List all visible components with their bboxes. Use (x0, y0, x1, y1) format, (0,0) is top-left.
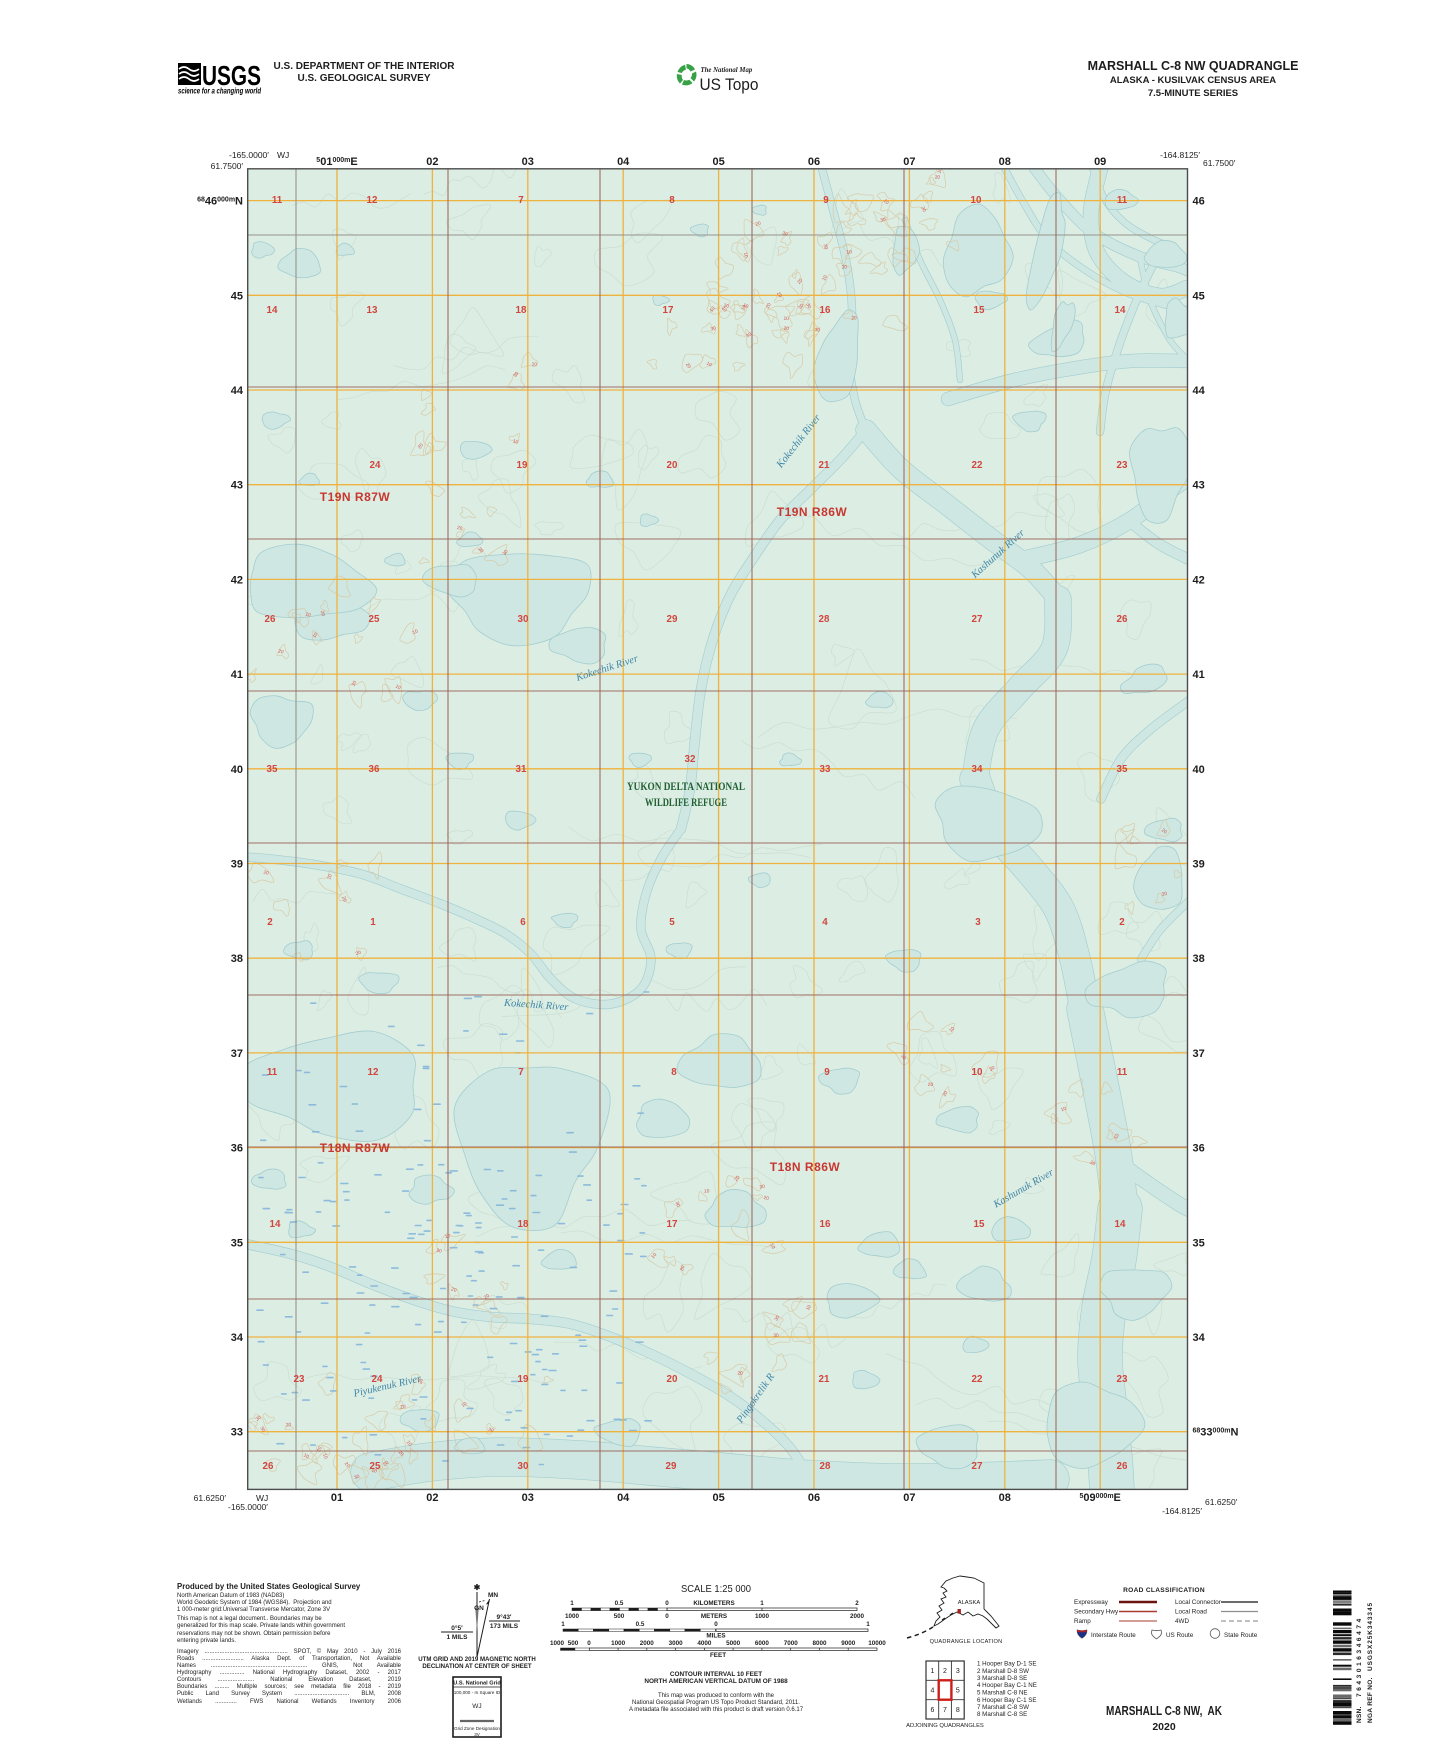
svg-text:ROAD CLASSIFICATION: ROAD CLASSIFICATION (1123, 1587, 1205, 1594)
svg-text:8000: 8000 (812, 1640, 827, 1647)
svg-text:0: 0 (714, 1621, 718, 1628)
svg-text:U.S. National Grid: U.S. National Grid (453, 1681, 501, 1687)
svg-text:06: 06 (808, 1492, 820, 1504)
svg-text:24: 24 (370, 460, 381, 471)
svg-text:38: 38 (231, 953, 243, 965)
svg-text:2000: 2000 (850, 1613, 865, 1620)
svg-text:20: 20 (286, 1422, 292, 1428)
svg-text:4: 4 (822, 917, 828, 928)
svg-text:7: 7 (943, 1707, 947, 1714)
svg-text:23: 23 (1117, 1374, 1128, 1385)
svg-text:04: 04 (617, 1492, 630, 1504)
svg-text:3 Marshall D-8 SE: 3 Marshall D-8 SE (977, 1675, 1027, 1682)
svg-text:11: 11 (267, 1067, 278, 1078)
svg-text:1: 1 (760, 1600, 764, 1607)
svg-text:27: 27 (972, 614, 983, 625)
svg-text:34: 34 (972, 764, 983, 775)
svg-text:29: 29 (666, 1461, 677, 1472)
svg-text:10: 10 (783, 316, 789, 322)
svg-text:36: 36 (231, 1143, 243, 1155)
svg-text:26: 26 (263, 1461, 274, 1472)
svg-text:9: 9 (824, 1067, 830, 1078)
svg-text:3000: 3000 (669, 1640, 684, 1647)
svg-text:0: 0 (587, 1640, 591, 1647)
svg-text:39: 39 (1193, 859, 1205, 871)
svg-text:NORTH AMERICAN VERTICAL DATUM: NORTH AMERICAN VERTICAL DATUM OF 1988 (644, 1678, 788, 1685)
svg-text:28: 28 (820, 1461, 831, 1472)
svg-text:14: 14 (1115, 305, 1126, 316)
svg-text:20: 20 (667, 1374, 678, 1385)
svg-text:06: 06 (808, 156, 820, 168)
svg-text:37: 37 (231, 1048, 243, 1060)
svg-text:4 Hooper Bay C-1 NE: 4 Hooper Bay C-1 NE (977, 1682, 1037, 1689)
svg-text:40: 40 (231, 764, 243, 776)
svg-text:20: 20 (928, 1082, 934, 1088)
svg-text:25: 25 (369, 614, 380, 625)
svg-text:0.5: 0.5 (636, 1621, 645, 1628)
svg-text:1: 1 (570, 1600, 574, 1607)
svg-text:1000: 1000 (755, 1613, 770, 1620)
svg-text:7643016346474: 7643016346474 (1356, 1616, 1363, 1697)
svg-text:22: 22 (972, 1374, 983, 1385)
svg-text:NSN.: NSN. (1356, 1706, 1363, 1723)
svg-text:2: 2 (943, 1668, 947, 1675)
svg-text:2000: 2000 (640, 1640, 655, 1647)
svg-text:Grid Zone Designation: Grid Zone Designation (454, 1726, 500, 1731)
svg-text:9: 9 (823, 195, 829, 206)
svg-text:1000: 1000 (611, 1640, 626, 1647)
svg-text:T18N R87W: T18N R87W (320, 1141, 391, 1155)
svg-text:0: 0 (665, 1600, 669, 1607)
svg-text:Local Connector: Local Connector (1175, 1599, 1221, 1606)
svg-text:04: 04 (617, 156, 630, 168)
svg-text:34: 34 (1193, 1332, 1206, 1344)
svg-text:0.5: 0.5 (615, 1600, 624, 1607)
svg-text:02: 02 (426, 1492, 438, 1504)
svg-text:2: 2 (1119, 917, 1125, 928)
svg-text:This map was produced to confo: This map was produced to conform with th… (658, 1693, 775, 1699)
svg-text:1: 1 (370, 917, 376, 928)
svg-text:5: 5 (956, 1688, 960, 1695)
svg-text:07: 07 (903, 1492, 915, 1504)
svg-text:8: 8 (669, 195, 675, 206)
svg-text:30: 30 (518, 1461, 529, 1472)
svg-text:5000: 5000 (726, 1640, 741, 1647)
svg-text:38: 38 (1193, 953, 1205, 965)
svg-text:05: 05 (712, 156, 724, 168)
svg-text:501000mE: 501000mE (316, 156, 357, 168)
svg-text:02: 02 (426, 156, 438, 168)
svg-text:1: 1 (930, 1668, 934, 1675)
svg-text:ADJOINING QUADRANGLES: ADJOINING QUADRANGLES (906, 1723, 984, 1729)
svg-text:DECLINATION AT CENTER OF SHEET: DECLINATION AT CENTER OF SHEET (422, 1663, 532, 1670)
svg-text:03: 03 (522, 156, 534, 168)
svg-text:2: 2 (855, 1600, 859, 1607)
svg-text:42: 42 (1193, 574, 1205, 586)
svg-text:01: 01 (331, 1492, 343, 1504)
svg-text:1: 1 (561, 1621, 565, 1628)
svg-text:30: 30 (814, 327, 820, 334)
svg-text:17: 17 (663, 305, 674, 316)
svg-text:4WD: 4WD (1175, 1618, 1189, 1625)
svg-text:0°5′: 0°5′ (451, 1624, 463, 1632)
svg-text:44: 44 (1193, 385, 1206, 397)
svg-text:31: 31 (516, 764, 527, 775)
svg-text:34: 34 (231, 1332, 244, 1344)
svg-text:29: 29 (667, 614, 678, 625)
svg-text:1 Hooper Bay D-1 SE: 1 Hooper Bay D-1 SE (977, 1661, 1037, 1668)
svg-text:09: 09 (1094, 156, 1106, 168)
svg-text:1 MILS: 1 MILS (447, 1634, 469, 1641)
svg-text:21: 21 (819, 1374, 830, 1385)
svg-text:27: 27 (972, 1461, 983, 1472)
svg-text:16: 16 (820, 305, 831, 316)
svg-text:10: 10 (531, 361, 537, 368)
svg-text:20: 20 (842, 264, 848, 270)
svg-text:43: 43 (1193, 480, 1205, 492)
svg-text:GN: GN (474, 1605, 484, 1612)
svg-text:UTM GRID AND 2019 MAGNETIC NOR: UTM GRID AND 2019 MAGNETIC NORTH (418, 1656, 536, 1663)
svg-text:26: 26 (1117, 1461, 1128, 1472)
svg-text:CONTOUR INTERVAL 10 FEET: CONTOUR INTERVAL 10 FEET (670, 1671, 762, 1678)
svg-text:35: 35 (231, 1237, 243, 1249)
svg-text:4000: 4000 (697, 1640, 712, 1647)
svg-text:9000: 9000 (841, 1640, 856, 1647)
svg-text:45: 45 (231, 290, 243, 302)
svg-text:14: 14 (1115, 1219, 1126, 1230)
svg-text:10: 10 (972, 1067, 983, 1078)
svg-text:35: 35 (1117, 764, 1128, 775)
svg-text:18: 18 (518, 1219, 529, 1230)
svg-text:30: 30 (518, 614, 529, 625)
svg-text:08: 08 (999, 1492, 1011, 1504)
svg-text:20: 20 (667, 460, 678, 471)
svg-text:19: 19 (518, 1374, 529, 1385)
svg-text:41: 41 (231, 669, 243, 681)
svg-text:6846000mN: 6846000mN (197, 196, 243, 208)
svg-text:500: 500 (568, 1640, 579, 1647)
svg-text:MARSHALL C-8 NW, AK: MARSHALL C-8 NW, AK (1106, 1703, 1222, 1718)
svg-text:2: 2 (267, 917, 273, 928)
svg-text:33: 33 (231, 1427, 243, 1439)
svg-text:5 Marshall C-8 NE: 5 Marshall C-8 NE (977, 1690, 1028, 1697)
svg-text:100,000 - m Square ID: 100,000 - m Square ID (454, 1690, 501, 1695)
svg-text:61.7500′: 61.7500′ (211, 161, 244, 171)
svg-text:33: 33 (820, 764, 831, 775)
svg-text:41: 41 (1193, 669, 1205, 681)
svg-text:4: 4 (930, 1688, 934, 1695)
svg-text:08: 08 (999, 156, 1011, 168)
svg-text:6: 6 (930, 1707, 934, 1714)
svg-text:3: 3 (956, 1668, 960, 1675)
svg-text:35: 35 (1193, 1237, 1205, 1249)
svg-text:10: 10 (846, 249, 852, 256)
svg-text:MN: MN (488, 1592, 498, 1599)
svg-text:T18N R86W: T18N R86W (770, 1160, 841, 1174)
svg-text:23: 23 (294, 1374, 305, 1385)
svg-text:7: 7 (518, 1067, 524, 1078)
svg-text:-164.8125′: -164.8125′ (1160, 150, 1200, 160)
svg-text:16: 16 (820, 1219, 831, 1230)
svg-text:1: 1 (866, 1621, 870, 1628)
svg-text:10: 10 (704, 1188, 710, 1194)
svg-text:37: 37 (1193, 1048, 1205, 1060)
svg-text:FEET: FEET (710, 1652, 726, 1659)
svg-text:03: 03 (522, 1492, 534, 1504)
svg-text:T19N R87W: T19N R87W (320, 490, 391, 504)
svg-text:46: 46 (1193, 196, 1205, 208)
svg-text:173 MILS: 173 MILS (490, 1623, 519, 1630)
svg-text:METERS: METERS (701, 1613, 727, 1620)
svg-text:2 Marshall D-8 SW: 2 Marshall D-8 SW (977, 1668, 1029, 1675)
svg-text:14: 14 (270, 1219, 281, 1230)
svg-text:8: 8 (956, 1707, 960, 1714)
svg-text:13: 13 (367, 305, 378, 316)
svg-text:17: 17 (667, 1219, 678, 1230)
svg-text:1000: 1000 (550, 1640, 565, 1647)
svg-text:6833000mN: 6833000mN (1193, 1427, 1239, 1439)
svg-text:1000: 1000 (565, 1613, 580, 1620)
svg-text:3: 3 (975, 917, 981, 928)
svg-text:NGA REF NO.: NGA REF NO. (1367, 1677, 1374, 1723)
svg-text:21: 21 (819, 460, 830, 471)
svg-text:14: 14 (267, 305, 278, 316)
svg-text:23: 23 (1117, 460, 1128, 471)
svg-text:32: 32 (685, 754, 696, 765)
svg-text:10000: 10000 (868, 1640, 886, 1647)
svg-text:Secondary Hwy: Secondary Hwy (1074, 1609, 1119, 1616)
svg-text:15: 15 (974, 1219, 985, 1230)
svg-text:22: 22 (972, 460, 983, 471)
svg-text:61.6250′: 61.6250′ (1205, 1497, 1238, 1507)
svg-text:WJ: WJ (472, 1703, 481, 1710)
svg-text:-165.0000′: -165.0000′ (228, 1502, 268, 1512)
svg-text:26: 26 (265, 614, 276, 625)
svg-text:30: 30 (773, 1333, 779, 1339)
svg-text:6 Hooper Bay C-1 SE: 6 Hooper Bay C-1 SE (977, 1697, 1037, 1704)
svg-text:2020: 2020 (1152, 1721, 1176, 1733)
svg-text:A metadata file associated wit: A metadata file associated with this pro… (629, 1707, 804, 1713)
svg-text:11: 11 (1117, 195, 1128, 206)
svg-text:20: 20 (400, 1404, 406, 1410)
svg-text:42: 42 (231, 574, 243, 586)
svg-text:509000mE: 509000mE (1079, 1492, 1120, 1504)
svg-text:43: 43 (231, 480, 243, 492)
svg-text:-164.8125′: -164.8125′ (1162, 1506, 1202, 1516)
svg-text:44: 44 (231, 385, 244, 397)
svg-text:36: 36 (369, 764, 380, 775)
svg-text:40: 40 (1193, 764, 1205, 776)
svg-text:12: 12 (367, 195, 378, 206)
svg-text:Expressway: Expressway (1074, 1599, 1109, 1606)
svg-text:07: 07 (903, 156, 915, 168)
svg-text:10: 10 (971, 195, 982, 206)
svg-text:20: 20 (851, 315, 857, 321)
svg-text:6: 6 (520, 917, 526, 928)
svg-text:18: 18 (516, 305, 527, 316)
svg-text:35: 35 (267, 764, 278, 775)
svg-text:Local Road: Local Road (1175, 1609, 1207, 1616)
svg-text:US Route: US Route (1166, 1632, 1194, 1639)
svg-text:20: 20 (935, 174, 941, 180)
svg-text:State Route: State Route (1224, 1632, 1258, 1639)
svg-text:6000: 6000 (755, 1640, 770, 1647)
svg-text:28: 28 (819, 614, 830, 625)
svg-text:WJ: WJ (277, 150, 289, 160)
svg-text:26: 26 (1117, 614, 1128, 625)
svg-text:National Geospatial Program US: National Geospatial Program US Topo Prod… (632, 1700, 800, 1706)
svg-text:YUKON DELTA NATIONAL: YUKON DELTA NATIONAL (627, 779, 745, 793)
svg-text:39: 39 (231, 859, 243, 871)
svg-text:45: 45 (1193, 290, 1205, 302)
svg-text:WILDLIFE REFUGE: WILDLIFE REFUGE (645, 795, 727, 809)
svg-text:-165.0000′: -165.0000′ (229, 150, 269, 160)
svg-text:T19N R86W: T19N R86W (777, 505, 848, 519)
svg-text:8: 8 (671, 1067, 677, 1078)
svg-text:61.7500′: 61.7500′ (1203, 158, 1236, 168)
svg-text:✱: ✱ (474, 1583, 481, 1592)
svg-text:7: 7 (518, 195, 524, 206)
svg-text:0: 0 (665, 1613, 669, 1620)
svg-text:7000: 7000 (784, 1640, 799, 1647)
svg-text:5: 5 (669, 917, 675, 928)
svg-text:KILOMETERS: KILOMETERS (693, 1600, 734, 1607)
svg-text:25: 25 (370, 1461, 381, 1472)
svg-text:15: 15 (974, 305, 985, 316)
svg-text:36: 36 (1193, 1143, 1205, 1155)
svg-text:SCALE 1:25 000: SCALE 1:25 000 (681, 1583, 751, 1595)
svg-text:05: 05 (712, 1492, 724, 1504)
svg-text:3V: 3V (474, 1732, 481, 1737)
svg-text:MILES: MILES (706, 1633, 725, 1640)
svg-text:USGSX25K343345: USGSX25K343345 (1367, 1602, 1374, 1671)
svg-text:61.6250′: 61.6250′ (194, 1493, 227, 1503)
svg-text:7 Marshall C-8 SW: 7 Marshall C-8 SW (977, 1704, 1029, 1711)
svg-text:Ramp: Ramp (1074, 1618, 1091, 1625)
svg-text:9°43′: 9°43′ (496, 1613, 511, 1621)
svg-text:20: 20 (783, 326, 789, 332)
svg-text:19: 19 (517, 460, 528, 471)
svg-text:8 Marshall C-8 SE: 8 Marshall C-8 SE (977, 1711, 1027, 1718)
svg-text:11: 11 (1117, 1067, 1128, 1078)
svg-text:20: 20 (737, 1371, 743, 1377)
svg-text:Interstate Route: Interstate Route (1091, 1632, 1136, 1639)
svg-text:QUADRANGLE LOCATION: QUADRANGLE LOCATION (930, 1639, 1003, 1645)
svg-text:12: 12 (368, 1067, 379, 1078)
svg-text:11: 11 (272, 195, 283, 206)
svg-text:ALASKA: ALASKA (958, 1600, 981, 1606)
svg-text:500: 500 (614, 1613, 625, 1620)
